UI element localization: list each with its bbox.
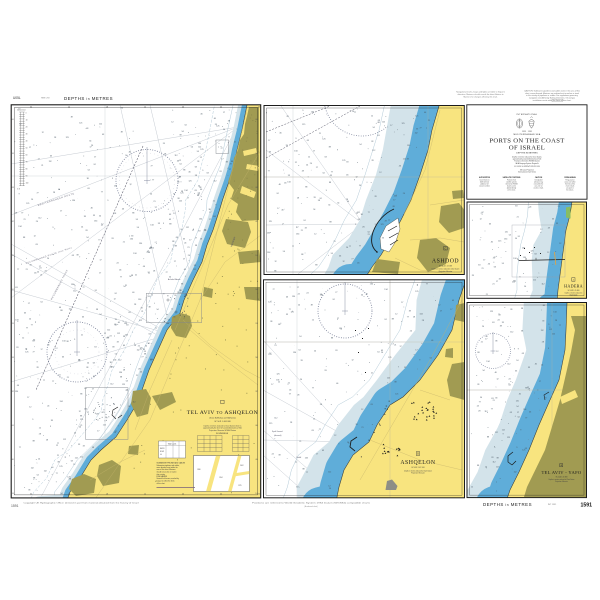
svg-text:21: 21 (103, 412, 105, 414)
svg-text:38: 38 (131, 275, 133, 277)
svg-text:46: 46 (200, 113, 202, 115)
svg-text:77: 77 (21, 213, 23, 215)
svg-text:s: s (101, 180, 102, 182)
svg-text:28: 28 (510, 309, 512, 311)
svg-text:12: 12 (22, 338, 24, 340)
svg-text:24: 24 (303, 220, 305, 222)
svg-text:38: 38 (195, 175, 197, 177)
svg-text:125: 125 (381, 224, 384, 226)
svg-text:28: 28 (85, 230, 87, 232)
svg-text:24: 24 (333, 299, 335, 301)
svg-text:112: 112 (485, 411, 488, 413)
svg-text:38: 38 (361, 214, 363, 216)
svg-text:77: 77 (368, 212, 370, 214)
svg-text:33: 33 (552, 218, 554, 220)
svg-text:Copyright UK Hydrographic Offi: Copyright UK Hydrographic Office: derive… (24, 501, 140, 504)
svg-text:77: 77 (319, 429, 321, 431)
svg-text:125: 125 (26, 203, 29, 205)
svg-text:125: 125 (80, 419, 83, 421)
svg-text:46: 46 (214, 118, 216, 120)
svg-text:9: 9 (548, 324, 549, 326)
svg-text:63: 63 (515, 205, 517, 207)
svg-text:24: 24 (123, 345, 125, 347)
svg-text:s: s (274, 302, 275, 304)
svg-text:21: 21 (81, 335, 83, 337)
svg-text:x: x (163, 203, 164, 205)
svg-text:54: 54 (377, 351, 379, 353)
svg-text:9: 9 (88, 373, 89, 375)
svg-text:88: 88 (175, 245, 177, 247)
svg-text:24: 24 (68, 494, 70, 496)
svg-text:54: 54 (373, 127, 375, 129)
svg-text:17: 17 (313, 151, 315, 153)
svg-text:+: + (361, 285, 362, 287)
svg-text:88: 88 (525, 388, 527, 390)
svg-text:12: 12 (275, 261, 277, 263)
svg-text:38: 38 (87, 178, 89, 180)
svg-text:46: 46 (491, 242, 493, 244)
svg-text:SCALES AS SHOWN ON PLANS: SCALES AS SHOWN ON PLANS (514, 165, 540, 168)
svg-text:46: 46 (188, 171, 190, 173)
svg-text:46: 46 (529, 411, 531, 413)
svg-text:38: 38 (228, 120, 230, 122)
svg-text:33: 33 (30, 264, 32, 266)
svg-text:112: 112 (63, 439, 66, 441)
svg-text:112: 112 (541, 330, 544, 332)
svg-text:77: 77 (19, 447, 21, 449)
svg-text:12: 12 (547, 252, 549, 254)
svg-text:28: 28 (153, 270, 155, 272)
svg-text:24: 24 (87, 362, 89, 364)
svg-text:9: 9 (519, 277, 520, 279)
svg-text:125: 125 (216, 126, 219, 128)
svg-text:24: 24 (45, 270, 47, 272)
svg-text:12: 12 (295, 162, 297, 164)
svg-text:24: 24 (184, 243, 186, 245)
svg-text:x: x (98, 367, 99, 369)
svg-text:34: 34 (12, 153, 14, 155)
svg-text:134: 134 (213, 216, 216, 218)
svg-text:24: 24 (68, 107, 70, 109)
svg-text:40: 40 (255, 459, 257, 461)
svg-text:28: 28 (134, 304, 136, 306)
svg-text:SCALE 1:100 000: SCALE 1:100 000 (214, 420, 231, 423)
svg-text:(disused): (disused) (274, 435, 282, 437)
svg-text:DEPTHS in METRES: DEPTHS in METRES (64, 96, 113, 101)
svg-text:28: 28 (290, 422, 292, 424)
svg-text:9: 9 (419, 360, 420, 362)
svg-text:125: 125 (498, 241, 501, 243)
svg-text:112: 112 (533, 280, 536, 282)
svg-text:54: 54 (157, 309, 159, 311)
svg-text:TEL AVIV - YAFO: TEL AVIV - YAFO (541, 470, 581, 475)
svg-text:INTERNATIONAL: INTERNATIONAL (516, 113, 538, 116)
svg-text:12: 12 (200, 157, 202, 159)
svg-text:38: 38 (195, 245, 197, 247)
svg-text:88: 88 (80, 393, 82, 395)
svg-text:70: 70 (26, 162, 28, 164)
svg-text:24: 24 (529, 206, 531, 208)
svg-text:33: 33 (117, 341, 119, 343)
svg-text:12: 12 (361, 409, 363, 411)
svg-text:17: 17 (90, 147, 92, 149)
svg-text:112: 112 (510, 332, 513, 334)
svg-text:9: 9 (112, 178, 113, 180)
svg-text:112: 112 (415, 132, 418, 134)
svg-text:88: 88 (305, 187, 307, 189)
svg-text:46: 46 (286, 297, 288, 299)
svg-text:24: 24 (36, 221, 38, 223)
svg-text:134: 134 (18, 226, 21, 228)
svg-text:+: + (51, 266, 52, 268)
svg-text:33: 33 (335, 350, 337, 352)
svg-text:17: 17 (189, 239, 191, 241)
svg-text:+: + (311, 169, 312, 171)
svg-text:63: 63 (102, 134, 104, 136)
svg-text:33: 33 (286, 145, 288, 147)
svg-text:112: 112 (328, 471, 331, 473)
svg-text:0: 0 (26, 113, 27, 115)
svg-text:17: 17 (415, 350, 417, 352)
svg-text:40: 40 (26, 141, 28, 143)
svg-text:MHWS: MHWS (160, 448, 164, 450)
svg-text:12: 12 (105, 417, 107, 419)
svg-text:125: 125 (269, 423, 272, 425)
svg-text:33: 33 (174, 295, 176, 297)
svg-text:s: s (523, 222, 524, 224)
svg-text:17: 17 (277, 208, 279, 210)
svg-text:21: 21 (187, 247, 189, 249)
svg-text:9: 9 (503, 433, 504, 435)
svg-text:+: + (361, 373, 362, 375)
svg-text:ordnance may: ordnance may (534, 182, 543, 184)
svg-text:21: 21 (123, 242, 125, 244)
svg-text:U05L: U05L (13, 96, 21, 100)
svg-text:17: 17 (316, 453, 318, 455)
svg-text:134: 134 (292, 296, 295, 298)
svg-text:88: 88 (226, 162, 228, 164)
svg-text:17: 17 (450, 309, 452, 311)
svg-text:134: 134 (119, 372, 122, 374)
svg-text:s: s (516, 433, 517, 435)
svg-text:9: 9 (516, 447, 517, 449)
svg-text:s: s (371, 282, 372, 284)
svg-text:54: 54 (223, 129, 225, 131)
svg-text:38: 38 (320, 404, 322, 406)
svg-text:12: 12 (471, 487, 473, 489)
svg-text:88: 88 (329, 147, 331, 149)
svg-text:30: 30 (30, 494, 32, 496)
svg-text:125: 125 (387, 377, 390, 379)
svg-text:Ashdod Roads: Ashdod Roads (167, 278, 180, 281)
svg-text:54: 54 (328, 204, 330, 206)
svg-text:134: 134 (62, 340, 65, 342)
svg-text:88: 88 (393, 206, 395, 208)
svg-text:24: 24 (509, 378, 511, 380)
svg-text:33: 33 (330, 175, 332, 177)
svg-text:88: 88 (197, 195, 199, 197)
svg-text:88: 88 (543, 305, 545, 307)
svg-text:38: 38 (495, 340, 497, 342)
svg-text:33: 33 (158, 223, 160, 225)
svg-text:54: 54 (125, 155, 127, 157)
svg-text:12: 12 (497, 379, 499, 381)
svg-text:17: 17 (539, 381, 541, 383)
svg-text:28: 28 (542, 342, 544, 344)
svg-text:20: 20 (26, 127, 28, 129)
svg-text:s: s (14, 256, 15, 258)
svg-text:63: 63 (149, 333, 151, 335)
svg-text:17: 17 (482, 212, 484, 214)
svg-text:HNE 2W: HNE 2W (41, 98, 50, 100)
svg-text:112: 112 (512, 282, 515, 284)
svg-text:12: 12 (104, 333, 106, 335)
svg-text:46: 46 (118, 322, 120, 324)
svg-text:134: 134 (293, 352, 296, 354)
svg-text:x: x (392, 344, 393, 346)
svg-text:88: 88 (315, 265, 317, 267)
svg-text:28: 28 (37, 367, 39, 369)
svg-text:134: 134 (96, 413, 99, 415)
svg-text:63: 63 (489, 224, 491, 226)
svg-text:21: 21 (517, 216, 519, 218)
svg-text:17: 17 (401, 302, 403, 304)
svg-text:28: 28 (491, 457, 493, 459)
svg-text:77: 77 (292, 246, 294, 248)
svg-text:21: 21 (138, 345, 140, 347)
svg-text:24: 24 (94, 164, 96, 166)
svg-text:46: 46 (279, 132, 281, 134)
svg-text:63: 63 (207, 173, 209, 175)
svg-text:12: 12 (114, 298, 116, 300)
svg-text:9: 9 (53, 227, 54, 229)
svg-text:77: 77 (141, 356, 143, 358)
svg-text:x: x (538, 398, 539, 400)
svg-text:77: 77 (407, 317, 409, 319)
svg-text:24: 24 (359, 185, 361, 187)
svg-text:+: + (501, 257, 502, 259)
svg-text:12: 12 (438, 305, 440, 307)
svg-text:SCALE 1:25 000: SCALE 1:25 000 (556, 476, 568, 479)
svg-text:s: s (99, 127, 100, 129)
svg-text:9: 9 (71, 230, 72, 232)
svg-text:88: 88 (132, 212, 134, 214)
svg-text:21: 21 (394, 344, 396, 346)
svg-text:33: 33 (416, 128, 418, 130)
svg-text:17: 17 (337, 318, 339, 320)
svg-text:112: 112 (137, 350, 140, 352)
svg-text:17: 17 (182, 291, 184, 293)
svg-text:63: 63 (82, 317, 84, 319)
svg-text:125: 125 (200, 149, 203, 151)
svg-text:17: 17 (223, 112, 225, 114)
svg-text:33: 33 (499, 279, 501, 281)
svg-text:17: 17 (29, 147, 31, 149)
svg-text:28: 28 (287, 116, 289, 118)
svg-text:17: 17 (115, 431, 117, 433)
svg-text:+: + (101, 360, 102, 362)
svg-text:46: 46 (119, 270, 121, 272)
svg-text:28: 28 (297, 197, 299, 199)
svg-text:38: 38 (179, 135, 181, 137)
svg-text:54: 54 (258, 494, 260, 496)
svg-text:24: 24 (31, 199, 33, 201)
svg-text:0.4: 0.4 (160, 454, 162, 456)
svg-text:Tidal Levels: Tidal Levels (168, 443, 177, 445)
svg-text:9: 9 (296, 138, 297, 140)
svg-text:x: x (271, 301, 272, 303)
svg-text:125: 125 (277, 373, 280, 375)
svg-text:+: + (173, 218, 174, 220)
svg-text:38: 38 (128, 406, 130, 408)
svg-text:17: 17 (229, 169, 231, 171)
svg-text:63: 63 (296, 487, 298, 489)
svg-text:12: 12 (171, 309, 173, 311)
svg-text:9: 9 (181, 293, 182, 295)
svg-text:77: 77 (273, 289, 275, 291)
svg-text:63: 63 (24, 313, 26, 315)
svg-text:s: s (37, 463, 38, 465)
svg-text:17: 17 (209, 212, 211, 214)
svg-text:9: 9 (107, 200, 108, 202)
svg-text:+: + (479, 307, 480, 309)
svg-text:77: 77 (31, 324, 33, 326)
svg-text:Positions are referred to Worl: Positions are referred to World Geodetic… (252, 501, 370, 504)
svg-text:46: 46 (346, 174, 348, 176)
svg-text:112: 112 (117, 333, 120, 335)
svg-text:9: 9 (75, 285, 76, 287)
svg-text:s: s (287, 458, 288, 460)
svg-text:24: 24 (117, 262, 119, 264)
svg-text:+: + (548, 286, 549, 288)
svg-text:00: 00 (255, 119, 257, 121)
svg-text:18: 18 (106, 107, 108, 109)
svg-text:x: x (97, 149, 98, 151)
svg-text:08: 08 (12, 187, 14, 189)
svg-text:125: 125 (103, 425, 106, 427)
svg-text:63: 63 (131, 235, 133, 237)
svg-text:134: 134 (198, 143, 201, 145)
svg-text:24: 24 (306, 292, 308, 294)
svg-text:46: 46 (59, 307, 61, 309)
svg-text:9: 9 (178, 211, 179, 213)
svg-text:54: 54 (480, 397, 482, 399)
svg-text:46: 46 (424, 112, 426, 114)
svg-text:28: 28 (78, 360, 80, 362)
svg-text:s: s (119, 145, 120, 147)
svg-text:46: 46 (488, 263, 490, 265)
svg-text:9: 9 (337, 150, 338, 152)
svg-text:s: s (198, 136, 199, 138)
svg-text:x: x (274, 438, 275, 440)
svg-text:33: 33 (78, 444, 80, 446)
svg-text:46: 46 (336, 383, 338, 385)
svg-text:s: s (278, 310, 279, 312)
svg-text:+: + (356, 298, 357, 300)
svg-text:x: x (301, 203, 302, 205)
svg-text:42: 42 (255, 221, 257, 223)
svg-text:54: 54 (198, 193, 200, 195)
svg-text:+: + (68, 391, 69, 393)
svg-text:77: 77 (52, 381, 54, 383)
svg-text:28: 28 (372, 160, 374, 162)
svg-text:s: s (84, 328, 85, 330)
svg-text:33: 33 (143, 349, 145, 351)
svg-text:x: x (290, 286, 291, 288)
svg-text:21: 21 (67, 377, 69, 379)
svg-text:s: s (183, 273, 184, 275)
svg-text:21: 21 (371, 372, 373, 374)
svg-text:63: 63 (176, 237, 178, 239)
svg-text:40: 40 (12, 459, 14, 461)
svg-text:42: 42 (12, 221, 14, 223)
svg-text:112: 112 (502, 430, 505, 432)
svg-text:38: 38 (149, 306, 151, 308)
svg-text:38: 38 (311, 304, 313, 306)
svg-text:12: 12 (73, 464, 75, 466)
svg-text:+: + (326, 114, 327, 116)
svg-text:38: 38 (57, 461, 59, 463)
svg-text:+: + (284, 209, 285, 211)
svg-text:12: 12 (328, 486, 330, 488)
svg-text:112: 112 (507, 364, 510, 366)
svg-text:63: 63 (195, 166, 197, 168)
svg-text:HADERA: HADERA (564, 284, 583, 289)
svg-text:DEPTHS in METRES: DEPTHS in METRES (483, 502, 532, 507)
svg-text:134: 134 (71, 284, 74, 286)
svg-text:112: 112 (110, 384, 113, 386)
svg-text:21: 21 (24, 219, 26, 221)
svg-text:77: 77 (354, 112, 356, 114)
svg-text:21: 21 (301, 230, 303, 232)
svg-text:17: 17 (268, 140, 270, 142)
svg-text:38: 38 (28, 490, 30, 492)
svg-text:125: 125 (496, 466, 499, 468)
svg-text:134: 134 (267, 252, 270, 254)
svg-text:63: 63 (62, 356, 64, 358)
svg-text:are given in: are given in (566, 188, 574, 190)
svg-text:21: 21 (493, 258, 495, 260)
svg-text:54: 54 (89, 140, 91, 142)
svg-text:x: x (305, 253, 306, 255)
svg-text:134: 134 (296, 233, 299, 235)
svg-text:50: 50 (12, 289, 14, 291)
svg-text:54: 54 (283, 251, 285, 253)
svg-text:46: 46 (279, 184, 281, 186)
svg-text:125: 125 (189, 180, 192, 182)
svg-text:88: 88 (23, 237, 25, 239)
svg-text:54: 54 (368, 231, 370, 233)
svg-text:+: + (132, 332, 133, 334)
svg-text:A: A (573, 279, 575, 282)
svg-text:33: 33 (305, 228, 307, 230)
svg-text:77: 77 (120, 277, 122, 279)
svg-text:112: 112 (133, 402, 136, 404)
svg-text:112: 112 (514, 471, 517, 473)
svg-text:1986: 1986 (197, 469, 201, 471)
svg-text:33: 33 (173, 316, 175, 318)
svg-text:s: s (357, 108, 358, 110)
svg-text:x: x (146, 357, 147, 359)
svg-text:77: 77 (43, 380, 45, 382)
svg-text:x: x (417, 368, 418, 370)
svg-text:21: 21 (319, 133, 321, 135)
svg-text:33: 33 (301, 360, 303, 362)
svg-text:+: + (284, 173, 285, 175)
svg-text:33: 33 (288, 175, 290, 177)
svg-text:17: 17 (192, 230, 194, 232)
svg-text:38: 38 (521, 308, 523, 310)
